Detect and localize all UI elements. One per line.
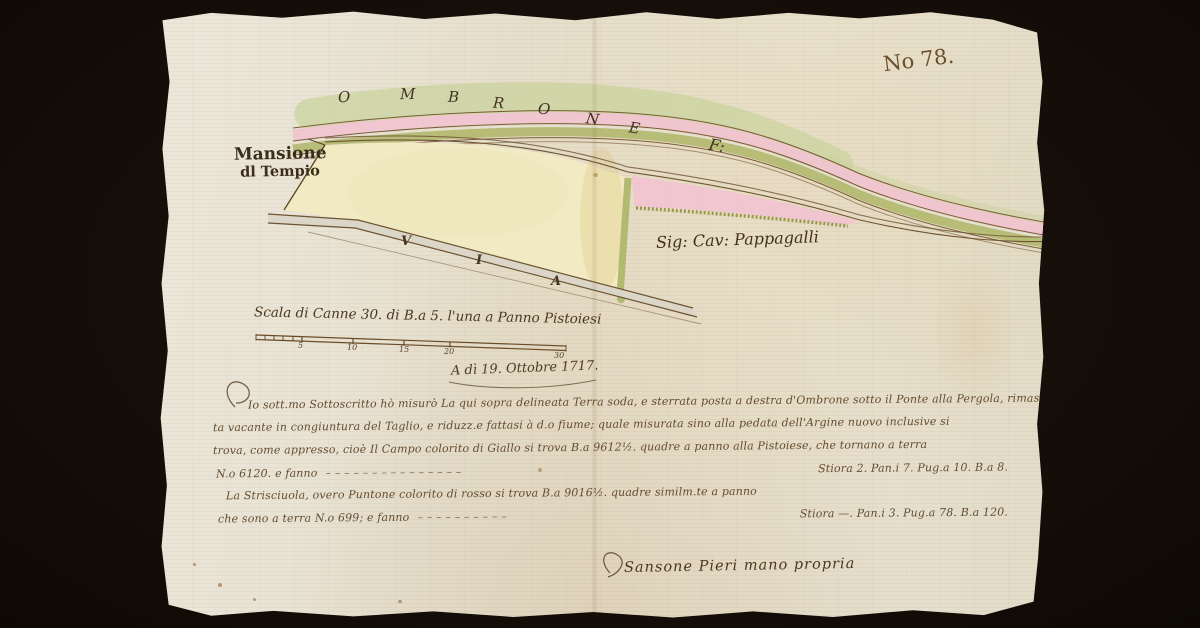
age-speck <box>193 563 196 566</box>
age-speck <box>218 583 222 587</box>
river-suffix-label: F: <box>707 135 726 156</box>
scale-tick-number: 5 <box>298 341 303 350</box>
river-name-letter: O <box>338 88 351 107</box>
river-name-letter: B <box>448 88 460 106</box>
age-speck <box>593 173 598 177</box>
archival-scan: No 78. O M B R O N E F: Mansione dl Temp… <box>0 0 1200 628</box>
scale-tick-number: 10 <box>347 343 357 352</box>
river-name-letter: R <box>492 94 505 113</box>
age-speck <box>398 600 402 603</box>
date-underline-flourish <box>449 380 596 388</box>
fold-stain-map <box>580 148 624 292</box>
road-letter: I <box>476 253 482 268</box>
field-stain <box>348 148 568 238</box>
manuscript-sheet: No 78. O M B R O N E F: Mansione dl Temp… <box>158 8 1046 620</box>
measure-left: N.o 6120. e fanno <box>216 467 318 481</box>
mansione-label: Mansione dl Tempio <box>234 145 327 180</box>
measure-result: Stiora 2. Pan.i 7. Pug.a 10. B.a 8. <box>818 461 1008 476</box>
signature-flourish <box>604 553 622 577</box>
age-speck <box>253 598 256 601</box>
road-letter: V <box>401 234 411 249</box>
measure-left: che sono a terra N.o 699; e fanno <box>218 511 410 526</box>
scale-tick-number: 20 <box>444 347 454 356</box>
river-name-letter: O <box>537 99 551 118</box>
river-name-letter: M <box>400 85 416 103</box>
mansione-line2: dl Tempio <box>234 163 327 180</box>
road-letter: A <box>551 274 561 289</box>
initial-flourish <box>227 382 249 407</box>
river-name-letter: N <box>585 109 601 129</box>
measure-result: Stiora —. Pan.i 3. Pug.a 78. B.a 120. <box>800 506 1008 521</box>
scale-tick-number: 15 <box>399 345 409 354</box>
